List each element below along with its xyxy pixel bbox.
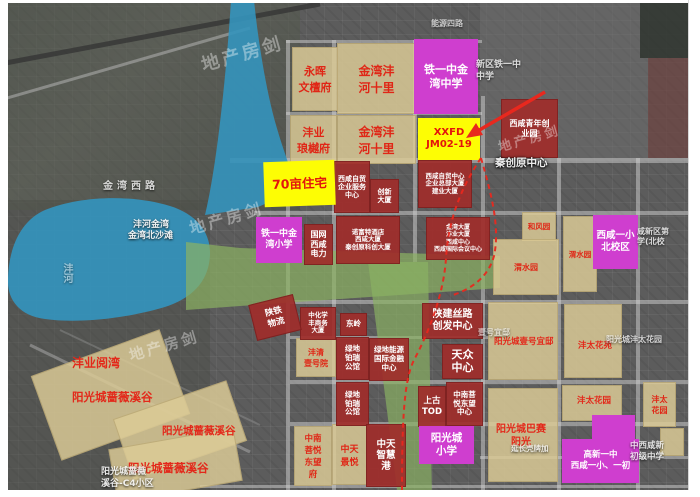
box-lvdi-borui-1: 绿地 铂瑞 公馆 [336,337,369,380]
block-weishuiyuan-1: 渭水园 [493,239,559,295]
box-label: 中化学 丰商务 大厦 [308,312,328,335]
box-label: 西咸自贸 企业服务 中心 [338,175,366,200]
frame-top [0,0,700,3]
block-label: 沣清 壹号院 [304,347,328,369]
box-label: 陕铁 物流 [264,306,285,330]
plot-70mu-zhuzhai: 70亩住宅 [263,160,336,207]
box-label: 天众 中心 [452,349,474,375]
block-label: 渭水园 [514,262,538,273]
box-chuangxin-dasha: 创新 大厦 [370,179,399,213]
frame-right [688,0,700,497]
plot-label: 70亩住宅 [272,175,327,193]
block-zhongtian-jingyue: 中天 景悦 [332,424,367,485]
road-vertical [481,96,485,490]
block-fengye-langyuefu: 沣业 琅樾府 [290,115,337,164]
label-fengtai-huayuan-mid: 沣太花园 [577,396,611,407]
road-horizontal [200,485,688,488]
block-zhongnan-puyue-dongwangfu: 中南 菩悦 东望 府 [294,426,332,486]
school-label: 铁一中金 湾中学 [424,63,468,91]
plot-xxfd-jm02-19: XXFD JM02-19 [418,118,480,160]
label-fengtai-huayuan-basemap: 阳光城沣太花园 [606,335,662,345]
lake-label-line1: 沣河金湾 [133,220,169,232]
label-fengye-yuewan: 沣业阅湾 [72,356,120,371]
label-yihao-yidi: 阳光城壹号宜邸 [494,337,554,348]
block-jinwan-fenghe-shili-1: 金湾沣 河十里 [337,43,416,114]
block-label: 金湾沣 河十里 [358,62,394,96]
block-label: 中南 菩悦 东望 府 [304,432,321,480]
river-label-vertical: 沣河 [60,263,73,283]
label-xinqu-tieyizhong: 新区铁一中 中学 [476,60,521,83]
label-xigu-c4: 阳光城蔷薇 溪谷-C4小区 [101,467,154,490]
box-lvdi-nengyuan-jinrong: 绿地能源 国际金融 中心 [369,338,409,381]
box-label: 上古 TOD [422,396,442,416]
school-label: 铁一中金 湾小学 [261,229,297,252]
box-dongling: 东岭 [340,313,367,336]
box-nuofute-xixiandasha: 诺富特酒店 西咸大厦 秦创原科创大厦 [336,216,400,264]
box-zimao-fuwu-zhongxin: 西咸自贸 企业服务 中心 [334,161,370,213]
box-label: 金湾大厦 沣业大厦 西咸中心 西咸国际会议中心 [434,224,482,252]
vegetation-area-topleft [0,0,300,210]
label-qiangwei-xigu-2: 阳光城蔷薇溪谷 [162,425,236,438]
box-label: 中南菩 悦东望 中心 [453,391,476,418]
box-label: 创新 大厦 [378,188,392,205]
plot-label: XXFD JM02-19 [426,127,472,152]
school-yangguangcheng-xiaoxue: 阳光城 小学 [419,426,474,464]
label-shell-station: 延长壳牌加 [511,444,549,454]
box-label: 中天 智慧 港 [376,439,395,473]
road-label-jinwanxilu: 金湾西路 [103,180,159,193]
block-hefengyuan: 和风园 [522,212,556,241]
label-qinchuangyuan-zhongxin: 秦创原中心 [495,157,548,171]
block-fengtai-huayuan-right: 沣太 花园 [643,382,676,427]
box-label: 国网 西咸 电力 [311,230,327,258]
school-label: 高新一中 西咸一小、一初 [571,450,631,471]
box-shanggu-tod: 上古 TOD [418,386,446,427]
label-qiangwei-xigu-1: 阳光城蔷薇溪谷 [72,390,153,404]
block-label: 沣太 花园 [652,394,668,416]
box-tianzhong-zhongxin: 天众 中心 [442,344,483,379]
block-label: 永晖 文檀府 [299,63,332,95]
block-jinwan-fenghe-shili-2: 金湾沣 河十里 [337,115,416,164]
satellite-map: 永晖 文檀府 金湾沣 河十里 沣业 琅樾府 金湾沣 河十里 和风园 渭水园 渭水… [0,0,700,497]
box-label: 绿地能源 国际金融 中心 [374,346,404,373]
block-label: 沣业 琅樾府 [297,124,330,156]
box-lvdi-borui-2: 绿地 铂瑞 公馆 [336,382,369,426]
lake-label-line2: 金湾北沙滩 [128,231,173,243]
box-label: 西咸自贸中心 企业总部大厦 建业大厦 [426,173,465,196]
frame-bottom [0,490,700,497]
label-yihao-yidi-basemap: 壹号宜邸 [478,328,510,338]
school-label: 阳光城 小学 [431,432,463,458]
label-chujizhongxue: 中西咸新 初级中学 [630,441,664,463]
dark-roofs-right [648,58,690,158]
school-tieyizhong-jinwan-zhongxue: 铁一中金 湾中学 [414,39,478,114]
box-zhongnan-dongwang-zhongxin: 中南菩 悦东望 中心 [446,382,483,426]
box-zhonghuaxue-shangwu: 中化学 丰商务 大厦 [300,307,336,340]
box-label: 诺富特酒店 西咸大厦 秦创原科创大厦 [345,229,391,252]
box-guowang-xixian-dianli: 国网 西咸 电力 [304,224,333,265]
school-tieyizhong-jinwan-xiaoxue: 铁一中金 湾小学 [256,217,302,263]
box-label: 陕建丝路 创发中心 [433,309,473,333]
block-label: 渭水园 [569,249,592,260]
box-zhongtian-zhihuigang: 中天 智慧 港 [366,424,406,487]
block-label: 中天 景悦 [340,442,358,468]
block-yonghui-wentanfu: 永晖 文檀府 [292,47,338,111]
box-zimao-zhongxin-zongbu: 西咸自贸中心 企业总部大厦 建业大厦 [418,160,472,208]
block-fengqing-yihaoyuan: 沣清 壹号院 [296,338,336,377]
block-label: 和风园 [528,221,551,232]
box-label: 绿地 铂瑞 公馆 [345,345,360,372]
block-weishuiyuan-2: 渭水园 [563,216,597,292]
box-shantie-wuliu: 陕铁 物流 [248,294,302,341]
box-label: 绿地 铂瑞 公馆 [345,391,360,418]
box-shanjian-silu: 陕建丝路 创发中心 [422,303,483,339]
box-jinwan-dasha-group: 金湾大厦 沣业大厦 西咸中心 西咸国际会议中心 [426,217,490,260]
road-label-nengyuansilu: 能源四路 [431,19,463,29]
frame-left [0,0,8,497]
school-gaoxin-yizhong: 高新一中 西咸一小、一初 [562,439,639,483]
map-screenshot: 永晖 文檀府 金湾沣 河十里 沣业 琅樾府 金湾沣 河十里 和风园 渭水园 渭水… [0,0,700,497]
block-label: 金湾沣 河十里 [358,123,394,157]
school-label: 西咸一小 北校区 [596,230,634,254]
label-xianxinqu-school: 咸新区第 学(北校 [637,227,669,248]
school-xixian-yixiao-beixiaoqu: 西咸一小 北校区 [593,215,638,269]
box-label: 东岭 [346,320,361,329]
